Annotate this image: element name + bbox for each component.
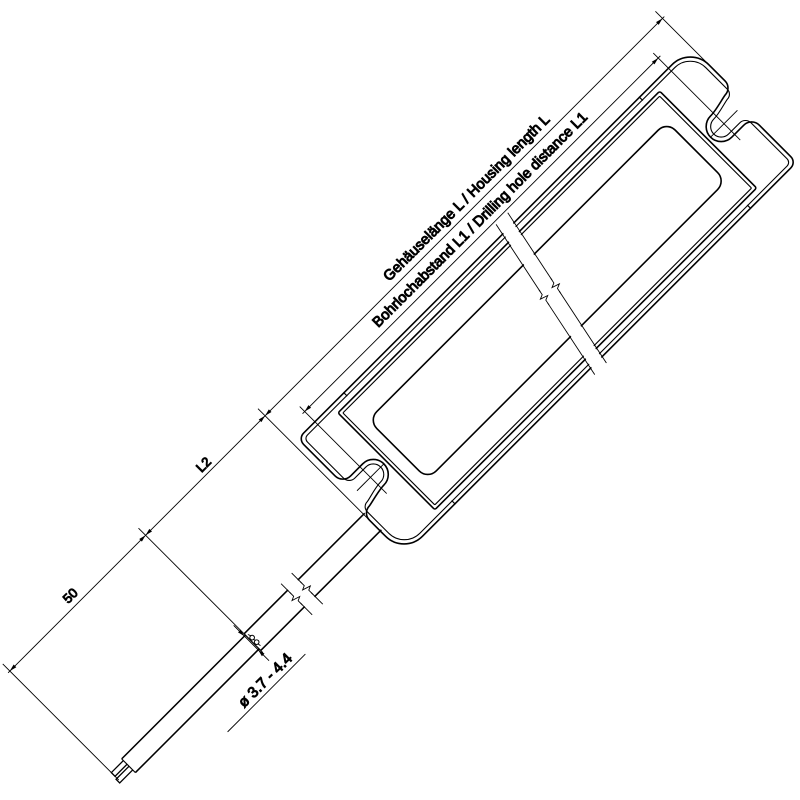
svg-text:L2: L2 bbox=[193, 454, 214, 475]
svg-text:ø 3.7 - 4.4: ø 3.7 - 4.4 bbox=[235, 650, 296, 711]
